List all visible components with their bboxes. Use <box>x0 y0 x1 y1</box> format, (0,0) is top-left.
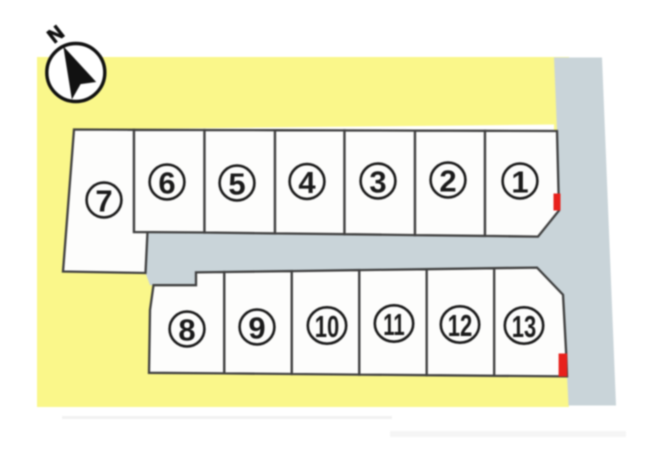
svg-text:8: 8 <box>178 312 195 347</box>
svg-text:12: 12 <box>448 308 473 343</box>
svg-text:7: 7 <box>95 183 112 218</box>
svg-text:9: 9 <box>248 310 265 345</box>
svg-text:4: 4 <box>298 165 316 200</box>
svg-text:2: 2 <box>439 163 456 198</box>
svg-text:3: 3 <box>369 164 386 199</box>
svg-text:13: 13 <box>512 309 537 344</box>
svg-text:10: 10 <box>315 309 340 344</box>
svg-text:11: 11 <box>383 307 405 342</box>
svg-text:6: 6 <box>158 165 175 200</box>
svg-text:5: 5 <box>228 166 245 201</box>
svg-text:1: 1 <box>511 164 528 199</box>
